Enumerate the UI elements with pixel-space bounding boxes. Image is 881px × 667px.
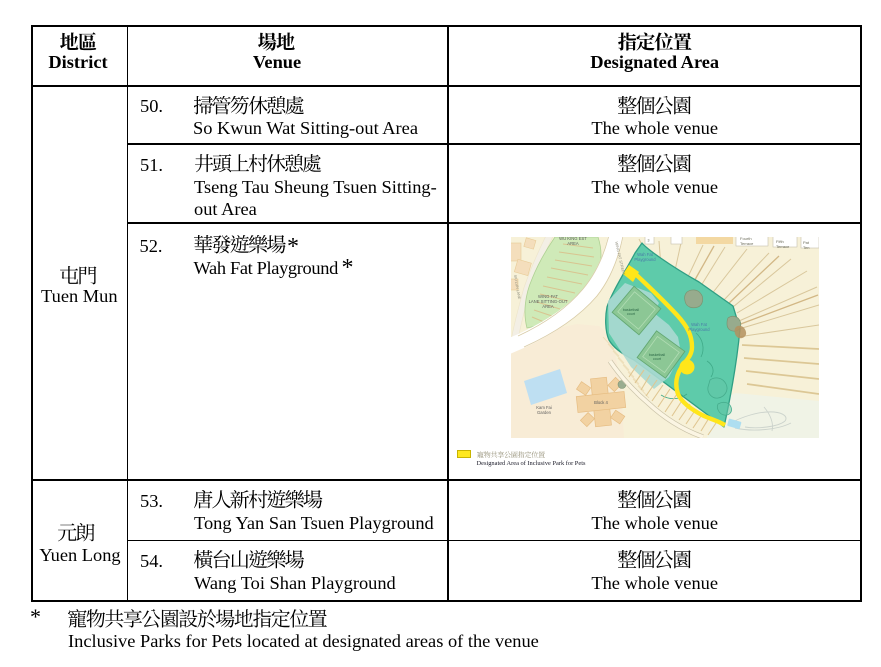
svg-text:Block 4: Block 4 xyxy=(594,400,608,405)
svg-text:court: court xyxy=(653,357,661,361)
svg-text:Garden: Garden xyxy=(537,410,552,415)
svg-text:AREA: AREA xyxy=(542,304,554,309)
svg-text:3: 3 xyxy=(648,239,650,243)
svg-text:Terrace: Terrace xyxy=(740,241,754,246)
svg-text:AREA: AREA xyxy=(567,241,579,246)
svg-text:Playground: Playground xyxy=(688,327,710,332)
svg-text:Playground: Playground xyxy=(634,257,656,262)
svg-text:Terrace: Terrace xyxy=(776,244,790,249)
svg-text:Ten: Ten xyxy=(803,245,809,250)
svg-text:court: court xyxy=(627,312,635,316)
